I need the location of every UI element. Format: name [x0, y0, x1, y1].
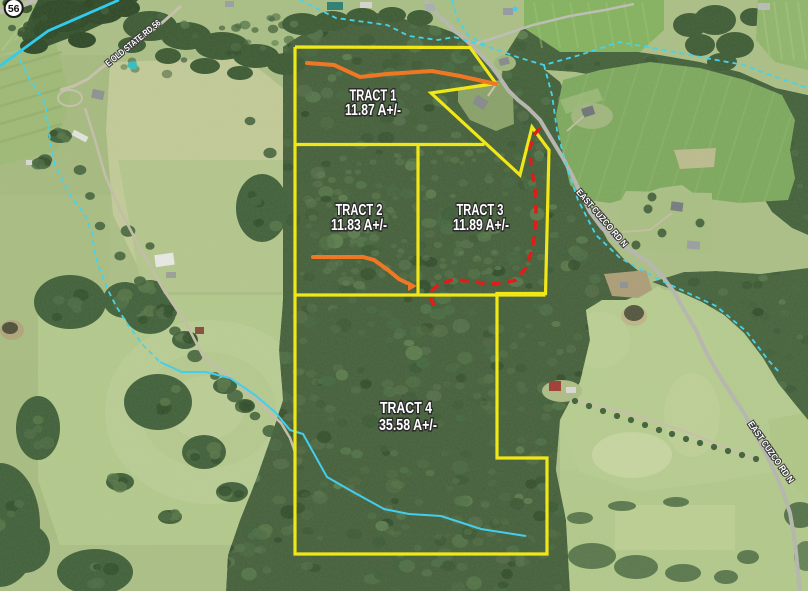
- svg-text:11.89 A+/-: 11.89 A+/-: [453, 217, 509, 234]
- svg-text:11.83 A+/-: 11.83 A+/-: [331, 217, 387, 234]
- svg-text:TRACT 4: TRACT 4: [380, 400, 432, 417]
- svg-text:35.58 A+/-: 35.58 A+/-: [379, 417, 437, 434]
- svg-text:56: 56: [8, 3, 20, 15]
- svg-text:11.87 A+/-: 11.87 A+/-: [345, 102, 401, 119]
